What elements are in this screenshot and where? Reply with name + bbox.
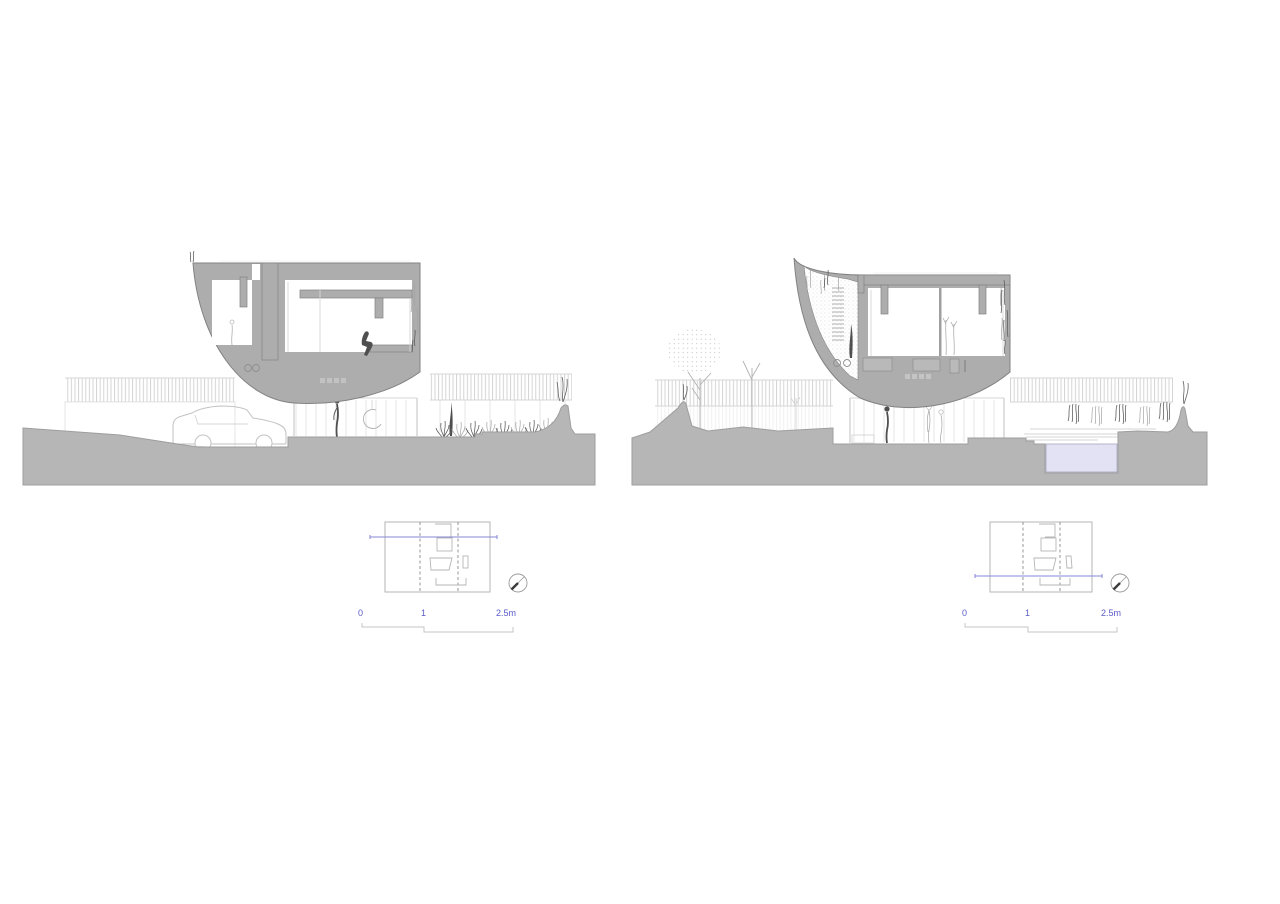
- scale-label-max: 2.5m: [1101, 608, 1121, 618]
- scale-label-one: 1: [1025, 608, 1030, 618]
- keyplan-group-left: 0 1 2.5m: [355, 510, 540, 640]
- scale-bar: 0 1 2.5m: [962, 608, 1121, 632]
- section-drawing-left: [20, 248, 600, 488]
- keyplan: [975, 522, 1102, 592]
- north-arrow-icon: [509, 574, 527, 592]
- scale-label-max: 2.5m: [496, 608, 516, 618]
- plan-furniture: [430, 524, 468, 585]
- drawing-sheet: 0 1 2.5m 0 1 2.5m: [0, 0, 1280, 904]
- north-arrow-icon: [1111, 574, 1129, 592]
- scale-label-zero: 0: [358, 608, 363, 618]
- standing-figure: [334, 398, 340, 437]
- scale-label-one: 1: [421, 608, 426, 618]
- keyplan-group-right: 0 1 2.5m: [955, 510, 1140, 640]
- section-cut-line: [370, 535, 497, 539]
- section-cut-line: [975, 574, 1102, 578]
- pool: [1046, 444, 1117, 472]
- scale-bar: 0 1 2.5m: [358, 608, 516, 632]
- scale-label-zero: 0: [962, 608, 967, 618]
- fence-right: [1010, 378, 1173, 402]
- keyplan: [370, 522, 497, 592]
- section-drawing-right: [628, 248, 1208, 488]
